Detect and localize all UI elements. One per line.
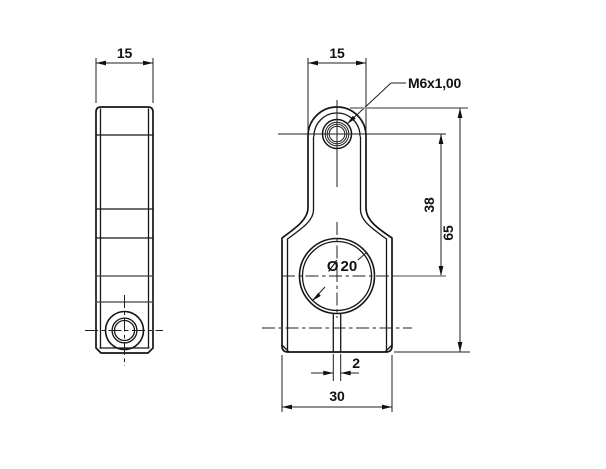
thread-callout: M6x1,00: [347, 75, 461, 124]
diameter-symbol: Ø: [327, 258, 339, 275]
front-view: [262, 100, 446, 352]
side-width-dimension: 15: [96, 45, 153, 103]
side-view: [85, 107, 163, 366]
dim-base-width: 30: [329, 388, 345, 404]
drawing-canvas: 15: [0, 0, 606, 469]
base-width-dimension: 30: [282, 355, 392, 412]
thread-hole: [278, 100, 446, 187]
dim-overall-height: 65: [440, 225, 456, 241]
slot-width-dimension: 2: [311, 354, 360, 381]
center-distance-dimension: 38: [393, 134, 446, 276]
side-view-outline: [96, 107, 153, 353]
dim-center-distance: 38: [421, 197, 437, 213]
technical-drawing: 15: [0, 0, 606, 469]
dim-front-width: 15: [329, 45, 345, 61]
diameter-value: 20: [340, 258, 357, 275]
overall-height-dimension: 65: [350, 108, 470, 352]
dim-bore-diameter: Ø20: [327, 258, 357, 275]
dim-slot-width: 2: [352, 355, 360, 371]
clamp-slot: [333, 314, 340, 352]
dim-side-width: 15: [117, 45, 133, 61]
thread-callout-label: M6x1,00: [408, 75, 461, 91]
